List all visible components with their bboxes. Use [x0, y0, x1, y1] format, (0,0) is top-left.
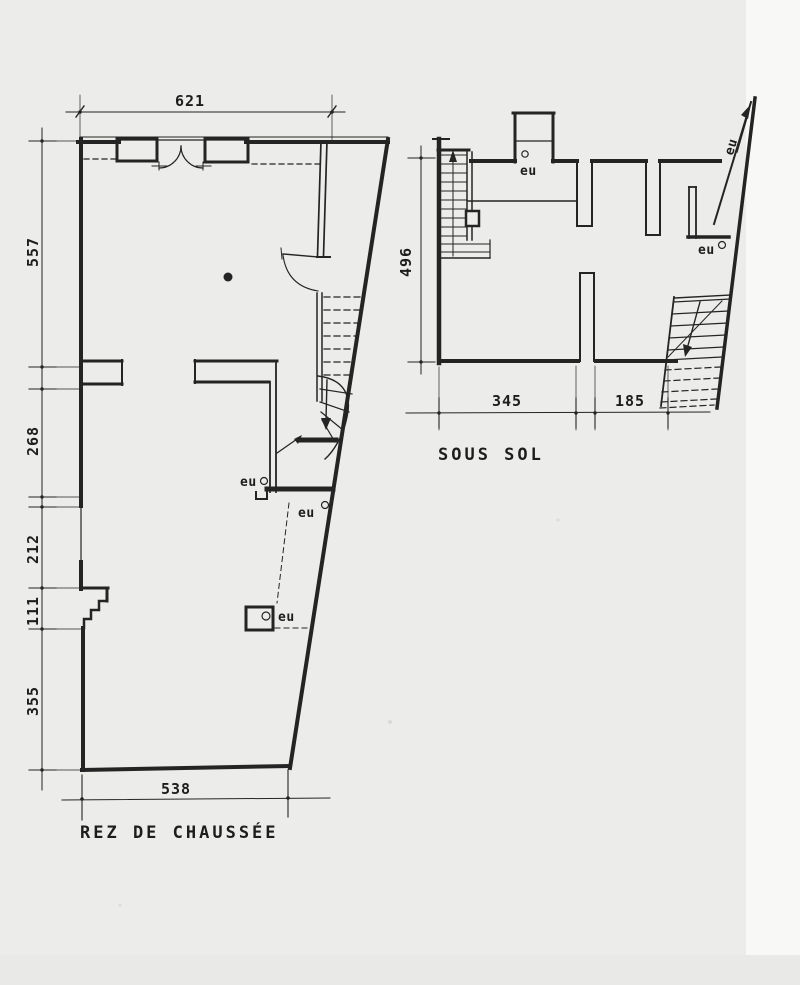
scan-speckle	[556, 518, 559, 521]
dim-label-185: 185	[615, 392, 645, 410]
eu-label: eu	[240, 475, 257, 490]
stair-direction-line	[326, 380, 327, 420]
scan-speckle	[118, 903, 121, 906]
dim-label-557: 557	[24, 237, 42, 267]
eu-label: eu	[278, 610, 295, 625]
scanned-sheet: 621 557 268 212 111 355 538 eu eu eu REZ…	[0, 0, 800, 985]
eu-label: eu	[520, 164, 537, 179]
dim-label-496: 496	[397, 247, 415, 277]
scan-speckle	[388, 720, 392, 724]
scan-bottom-shade	[0, 955, 800, 985]
dim-label-621: 621	[175, 92, 205, 110]
dim-label-212: 212	[24, 534, 42, 564]
dim-label-538: 538	[161, 780, 191, 798]
dim-label-268: 268	[24, 426, 42, 456]
dim-label-355: 355	[24, 686, 42, 716]
dim-label-345: 345	[492, 392, 522, 410]
scan-edge-strip	[746, 0, 800, 985]
floor-plan-drawing: 621 557 268 212 111 355 538 eu eu eu REZ…	[0, 0, 800, 985]
eu-label: eu	[698, 243, 715, 258]
dim-label-111: 111	[24, 596, 42, 626]
column-dot	[224, 273, 233, 282]
eu-label: eu	[298, 506, 315, 521]
basement-title: SOUS SOL	[438, 445, 544, 465]
ground-floor-title: REZ DE CHAUSSÉE	[80, 821, 279, 843]
stair-notch	[466, 211, 479, 226]
